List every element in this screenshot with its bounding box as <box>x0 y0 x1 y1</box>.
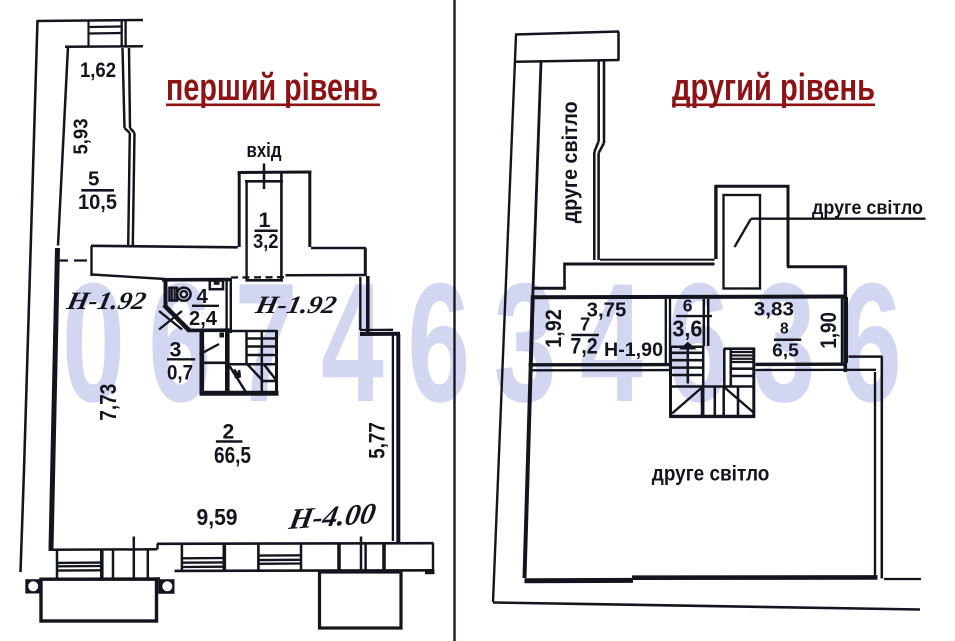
svg-text:друге світло: друге світло <box>812 198 923 219</box>
svg-text:5,77: 5,77 <box>365 422 390 459</box>
svg-text:другий рівень: другий рівень <box>672 67 875 109</box>
svg-text:3,83: 3,83 <box>754 300 794 321</box>
svg-text:1,62: 1,62 <box>80 59 116 82</box>
svg-text:7,73: 7,73 <box>95 384 121 421</box>
svg-text:Н-1,90: Н-1,90 <box>604 339 663 361</box>
svg-text:6,5: 6,5 <box>772 339 799 360</box>
svg-text:9,59: 9,59 <box>197 504 238 530</box>
svg-text:3,2: 3,2 <box>253 231 279 253</box>
svg-text:Н-1.92: Н-1.92 <box>252 291 339 319</box>
svg-text:перший рівень: перший рівень <box>166 67 378 109</box>
svg-text:1,92: 1,92 <box>541 309 566 348</box>
svg-text:7,2: 7,2 <box>570 334 597 359</box>
svg-text:2,4: 2,4 <box>189 307 218 330</box>
svg-text:2: 2 <box>223 420 235 443</box>
svg-text:8: 8 <box>780 320 789 337</box>
svg-text:3,6: 3,6 <box>672 315 702 341</box>
svg-text:3,75: 3,75 <box>587 300 627 322</box>
svg-text:вхід: вхід <box>247 140 282 162</box>
svg-text:4: 4 <box>197 285 209 308</box>
svg-text:1,90: 1,90 <box>816 312 841 349</box>
svg-text:10,5: 10,5 <box>78 191 117 214</box>
svg-text:5,93: 5,93 <box>71 119 93 155</box>
svg-text:друге світло: друге світло <box>652 462 770 485</box>
svg-text:Н-4.00: Н-4.00 <box>286 498 379 536</box>
svg-text:1: 1 <box>259 208 271 232</box>
svg-text:7: 7 <box>580 313 590 334</box>
svg-text:0,7: 0,7 <box>167 362 193 385</box>
svg-text:3: 3 <box>170 337 182 361</box>
svg-text:66,5: 66,5 <box>214 442 251 468</box>
svg-text:6: 6 <box>683 296 693 316</box>
svg-text:друге світло: друге світло <box>559 101 582 223</box>
svg-text:Н-1.92: Н-1.92 <box>64 287 149 315</box>
svg-text:5: 5 <box>88 168 99 191</box>
